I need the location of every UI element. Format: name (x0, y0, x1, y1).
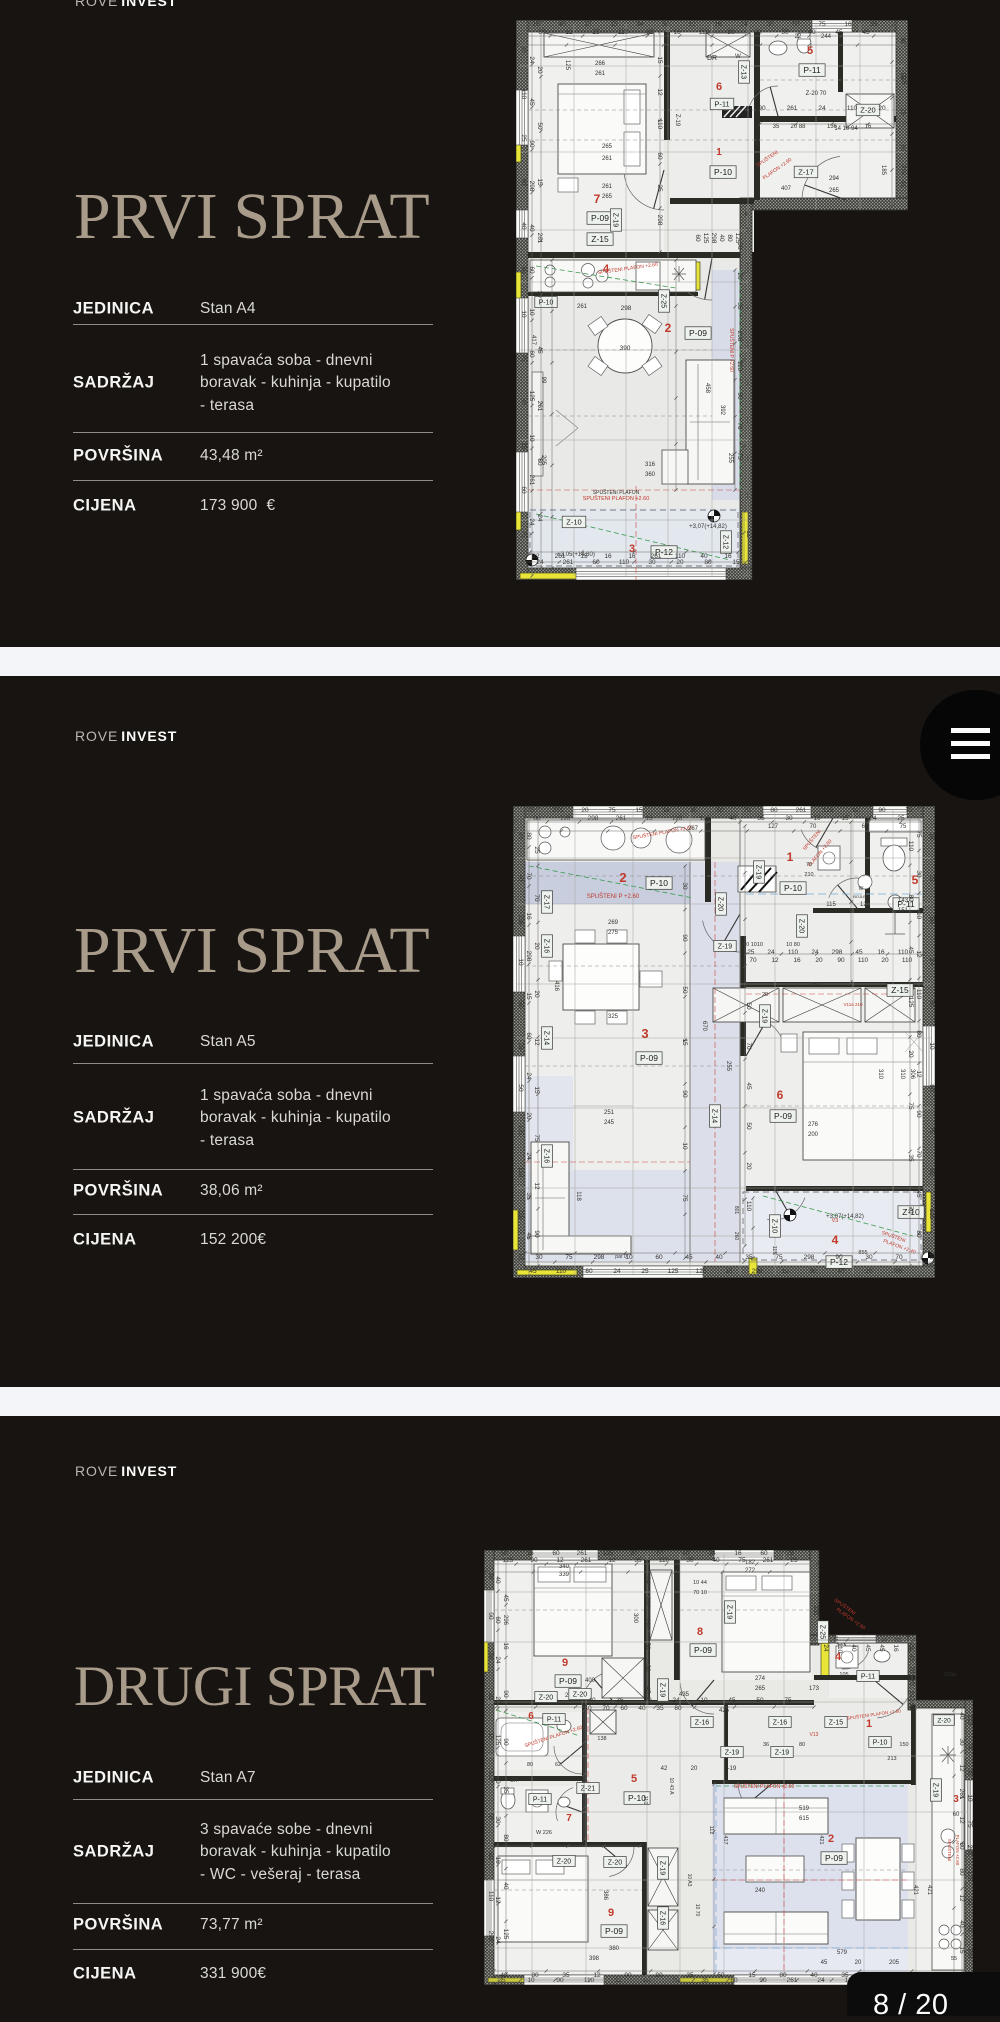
svg-text:110: 110 (672, 815, 683, 822)
svg-text:4: 4 (832, 1233, 839, 1247)
svg-text:16: 16 (662, 807, 670, 814)
svg-text:80: 80 (527, 1762, 533, 1768)
svg-text:325: 325 (608, 1014, 619, 1020)
svg-text:6: 6 (716, 81, 722, 93)
svg-text:24: 24 (767, 949, 775, 956)
svg-text:80: 80 (958, 1868, 965, 1876)
svg-text:75: 75 (786, 1550, 794, 1557)
svg-text:70: 70 (743, 807, 751, 814)
svg-text:125: 125 (702, 233, 709, 244)
svg-text:261: 261 (536, 233, 543, 244)
svg-text:173: 173 (809, 1686, 820, 1692)
svg-text:40: 40 (958, 1712, 965, 1720)
svg-text:125: 125 (494, 1735, 501, 1746)
svg-text:24: 24 (536, 559, 544, 566)
svg-text:6: 6 (777, 1088, 784, 1102)
svg-text:25: 25 (533, 846, 540, 854)
svg-text:Z-16: Z-16 (773, 1720, 788, 1727)
svg-text:Z-16: Z-16 (695, 1720, 710, 1727)
svg-text:110: 110 (915, 909, 922, 920)
svg-text:15: 15 (681, 1038, 688, 1046)
svg-text:Z-20: Z-20 (608, 1860, 623, 1867)
svg-text:80: 80 (915, 1230, 922, 1238)
svg-text:10: 10 (700, 1697, 708, 1704)
svg-text:261: 261 (528, 475, 535, 486)
svg-text:12: 12 (593, 1972, 601, 1979)
svg-text:269: 269 (608, 920, 619, 926)
svg-text:110: 110 (699, 29, 710, 36)
svg-text:75: 75 (915, 830, 922, 838)
svg-text:390: 390 (620, 345, 631, 352)
svg-text:P-11: P-11 (547, 1717, 561, 1724)
svg-text:255: 255 (725, 1061, 731, 1072)
svg-text:20: 20 (494, 1696, 501, 1704)
svg-text:425: 425 (719, 1708, 730, 1714)
svg-text:261: 261 (553, 807, 564, 814)
svg-text:210: 210 (900, 165, 906, 176)
svg-text:360: 360 (645, 472, 656, 478)
svg-text:60: 60 (494, 1616, 501, 1624)
svg-text:1: 1 (716, 147, 722, 158)
svg-text:12: 12 (958, 1894, 965, 1902)
svg-text:110: 110 (517, 1167, 524, 1178)
svg-text:62: 62 (555, 1762, 561, 1768)
svg-text:298: 298 (528, 181, 535, 192)
svg-text:125: 125 (517, 1125, 524, 1136)
svg-text:10: 10 (528, 434, 535, 442)
svg-text:75: 75 (533, 1134, 540, 1142)
svg-text:12: 12 (771, 957, 779, 964)
svg-text:Z-16: Z-16 (543, 1149, 550, 1164)
svg-text:35: 35 (899, 144, 906, 152)
svg-text:10: 10 (928, 1042, 935, 1050)
svg-text:300: 300 (632, 1613, 638, 1624)
svg-text:Z-19: Z-19 (612, 213, 619, 228)
svg-text:110: 110 (659, 1557, 670, 1564)
svg-text:75: 75 (520, 530, 527, 538)
svg-text:P-10: P-10 (784, 883, 802, 893)
svg-text:16: 16 (494, 1856, 501, 1864)
svg-text:P-09: P-09 (774, 1111, 792, 1121)
svg-text:P-11: P-11 (714, 100, 729, 109)
svg-text:90: 90 (624, 1972, 632, 1979)
svg-text:40: 40 (700, 553, 708, 560)
svg-text:75: 75 (681, 1194, 688, 1202)
svg-text:125: 125 (668, 1268, 679, 1275)
svg-text:35: 35 (745, 1254, 753, 1261)
svg-text:45: 45 (644, 1686, 651, 1694)
svg-text:10: 10 (528, 308, 535, 316)
svg-text:272: 272 (745, 1568, 756, 1574)
svg-text:15: 15 (656, 56, 663, 64)
svg-text:15: 15 (520, 442, 527, 450)
svg-text:110: 110 (656, 119, 663, 130)
svg-text:24: 24 (822, 1644, 829, 1652)
svg-text:15: 15 (610, 21, 618, 28)
svg-text:90: 90 (533, 1230, 540, 1238)
svg-text:75: 75 (775, 1254, 783, 1261)
svg-text:75: 75 (899, 108, 906, 116)
svg-text:30: 30 (644, 1664, 651, 1672)
svg-text:75: 75 (608, 807, 616, 814)
svg-text:10: 10 (625, 1254, 633, 1261)
svg-text:SPUŠTENI: SPUŠTENI (947, 1839, 953, 1862)
svg-text:60: 60 (792, 21, 800, 28)
svg-text:16: 16 (714, 21, 722, 28)
svg-text:90: 90 (928, 1168, 935, 1176)
svg-text:10: 10 (884, 211, 892, 218)
svg-text:80: 80 (770, 807, 778, 814)
svg-text:12: 12 (656, 88, 663, 96)
svg-text:15: 15 (732, 559, 740, 566)
svg-text:298: 298 (588, 815, 599, 822)
svg-text:5: 5 (807, 45, 813, 57)
svg-text:12: 12 (533, 1038, 540, 1046)
svg-text:118: 118 (575, 1191, 581, 1201)
svg-text:Z-20: Z-20 (539, 1695, 554, 1702)
svg-text:35: 35 (841, 1972, 849, 1979)
svg-text:316: 316 (645, 462, 656, 468)
svg-text:W: W (859, 886, 864, 892)
svg-text:25: 25 (656, 184, 663, 192)
svg-text:20: 20 (525, 1112, 532, 1120)
svg-text:110: 110 (675, 553, 686, 560)
svg-text:20: 20 (494, 1776, 501, 1784)
svg-text:30: 30 (630, 1550, 638, 1557)
svg-text:16: 16 (844, 21, 852, 28)
svg-text:24: 24 (928, 958, 935, 966)
svg-text:45: 45 (728, 1697, 736, 1704)
svg-text:205: 205 (889, 1960, 900, 1966)
svg-text:50: 50 (745, 1002, 752, 1010)
svg-text:421: 421 (912, 1885, 918, 1896)
svg-text:50: 50 (928, 916, 935, 924)
svg-text:90: 90 (487, 1612, 494, 1620)
svg-text:261: 261 (644, 1619, 651, 1630)
svg-text:45: 45 (685, 1254, 693, 1261)
svg-text:12: 12 (532, 553, 540, 560)
svg-text:Z-19: Z-19 (755, 865, 762, 880)
svg-text:V10a: V10a (944, 1672, 956, 1678)
svg-text:50: 50 (899, 72, 906, 80)
svg-text:20: 20 (691, 1766, 698, 1772)
svg-text:70 10: 70 10 (693, 1590, 707, 1596)
svg-text:40: 40 (729, 815, 737, 822)
svg-text:40: 40 (715, 1254, 723, 1261)
svg-text:35: 35 (616, 1697, 624, 1704)
svg-text:45: 45 (525, 1232, 532, 1240)
svg-text:SPUŠTENI P +2.60: SPUŠTENI P +2.60 (728, 328, 735, 372)
svg-text:25: 25 (520, 134, 527, 142)
svg-text:213: 213 (887, 1756, 896, 1762)
svg-text:24: 24 (644, 1576, 651, 1584)
svg-text:75: 75 (784, 211, 792, 218)
svg-text:30: 30 (785, 815, 793, 822)
svg-text:16: 16 (525, 912, 532, 920)
svg-text:10: 10 (536, 290, 543, 298)
svg-text:W: W (735, 54, 741, 60)
svg-text:125: 125 (603, 1550, 614, 1557)
svg-text:45: 45 (899, 180, 906, 188)
svg-text:10 70: 10 70 (694, 1904, 700, 1917)
svg-text:35: 35 (736, 302, 743, 310)
svg-text:261: 261 (581, 1557, 592, 1564)
svg-text:80: 80 (525, 832, 532, 840)
svg-text:20: 20 (536, 66, 543, 74)
svg-text:24: 24 (494, 1656, 501, 1664)
svg-text:298: 298 (736, 331, 743, 342)
svg-text:110: 110 (788, 949, 799, 956)
svg-text:30: 30 (535, 1254, 543, 1261)
svg-text:24: 24 (487, 1572, 494, 1580)
svg-text:90: 90 (736, 242, 743, 250)
svg-text:10: 10 (864, 211, 872, 218)
svg-text:2: 2 (665, 321, 672, 335)
svg-text:110: 110 (882, 219, 893, 226)
svg-text:Z-19: Z-19 (659, 1683, 666, 1698)
svg-text:P-11: P-11 (803, 65, 821, 75)
svg-text:Z-13: Z-13 (740, 65, 747, 80)
svg-text:30: 30 (686, 1557, 694, 1564)
svg-text:24: 24 (525, 1152, 532, 1160)
svg-text:310: 310 (877, 1069, 883, 1080)
svg-text:80: 80 (958, 1842, 965, 1850)
svg-text:Z-25: Z-25 (660, 294, 667, 309)
svg-text:12: 12 (915, 1070, 922, 1078)
svg-text:265: 265 (829, 188, 840, 194)
svg-text:90: 90 (966, 1898, 973, 1906)
svg-text:45: 45 (502, 1594, 509, 1602)
svg-text:298: 298 (804, 1254, 815, 1261)
svg-text:60: 60 (487, 1812, 494, 1820)
svg-text:75: 75 (907, 1102, 914, 1110)
svg-text:20: 20 (878, 105, 886, 112)
svg-text:407: 407 (781, 186, 792, 192)
svg-text:75: 75 (784, 1697, 792, 1704)
svg-text:151: 151 (898, 908, 909, 914)
svg-text:50: 50 (536, 122, 543, 130)
svg-text:12: 12 (556, 1557, 564, 1564)
svg-text:298: 298 (768, 219, 779, 226)
svg-text:125: 125 (966, 1871, 973, 1882)
svg-text:35: 35 (928, 874, 935, 882)
svg-text:35: 35 (757, 815, 765, 822)
svg-text:10: 10 (966, 1794, 973, 1802)
svg-text:68: 68 (895, 1638, 901, 1644)
svg-text:16: 16 (502, 1642, 509, 1650)
svg-text:80: 80 (533, 815, 541, 822)
svg-text:7: 7 (594, 192, 601, 206)
svg-text:Z-19: Z-19 (674, 114, 680, 127)
svg-text:20: 20 (762, 992, 768, 998)
svg-text:SPUŠTENI PLAFON +2.60: SPUŠTENI PLAFON +2.60 (734, 1783, 795, 1790)
svg-text:30: 30 (681, 882, 688, 890)
svg-text:Z-14: Z-14 (543, 1031, 550, 1046)
svg-text:112: 112 (708, 1826, 714, 1835)
svg-text:298: 298 (594, 1254, 605, 1261)
svg-text:75: 75 (928, 1126, 935, 1134)
svg-text:8: 8 (697, 1626, 703, 1638)
svg-text:60: 60 (760, 1550, 768, 1557)
svg-text:30: 30 (648, 559, 656, 566)
svg-text:Z-16: Z-16 (659, 1911, 666, 1926)
svg-text:60: 60 (528, 266, 535, 274)
svg-text:110: 110 (736, 361, 743, 372)
svg-text:40: 40 (718, 234, 725, 242)
svg-text:24: 24 (869, 815, 877, 822)
svg-text:240: 240 (755, 1888, 766, 1894)
svg-text:40: 40 (850, 1644, 857, 1652)
svg-text:SPUŠTENI PLAFON: SPUŠTENI PLAFON (593, 489, 640, 496)
svg-text:60: 60 (656, 1550, 664, 1557)
svg-text:579: 579 (837, 1950, 848, 1956)
svg-text:10 43 A: 10 43 A (668, 1778, 674, 1796)
svg-text:Z-15: Z-15 (829, 1720, 844, 1727)
svg-text:421: 421 (818, 1835, 824, 1844)
svg-text:110: 110 (745, 1201, 752, 1212)
svg-text:40: 40 (966, 1924, 973, 1932)
svg-text:70: 70 (749, 957, 757, 964)
svg-text:110: 110 (619, 559, 630, 566)
svg-text:12: 12 (788, 219, 796, 226)
svg-text:127: 127 (768, 824, 779, 830)
svg-text:V3: V3 (832, 1218, 839, 1224)
svg-text:Z-20: Z-20 (798, 919, 805, 934)
svg-text:70: 70 (754, 29, 762, 36)
svg-text:261: 261 (563, 559, 574, 566)
svg-text:16: 16 (877, 949, 885, 956)
svg-text:40: 40 (558, 21, 566, 28)
svg-text:210: 210 (804, 872, 813, 878)
svg-text:50: 50 (517, 1000, 524, 1008)
svg-text:45: 45 (835, 29, 843, 36)
svg-text:125: 125 (700, 815, 711, 822)
svg-text:Z-20: Z-20 (573, 1692, 588, 1699)
svg-text:70: 70 (907, 1206, 914, 1214)
svg-text:261: 261 (763, 1557, 774, 1564)
svg-text:417: 417 (530, 335, 536, 346)
svg-text:261: 261 (796, 807, 807, 814)
svg-text:30: 30 (494, 1816, 501, 1824)
svg-text:276: 276 (808, 1122, 819, 1128)
svg-text:275: 275 (608, 930, 619, 936)
svg-text:Z-20: Z-20 (860, 106, 875, 115)
svg-text:120: 120 (860, 902, 871, 908)
svg-text:35: 35 (502, 1786, 509, 1794)
svg-text:70: 70 (806, 862, 812, 868)
svg-text:P-09: P-09 (605, 1926, 623, 1936)
svg-text:20: 20 (676, 559, 684, 566)
svg-text:265: 265 (755, 1686, 766, 1692)
svg-text:12: 12 (614, 1977, 622, 1984)
svg-text:125: 125 (528, 391, 535, 402)
svg-text:125: 125 (564, 60, 570, 71)
svg-text:185: 185 (880, 165, 886, 176)
svg-text:150: 150 (899, 1742, 908, 1748)
svg-text:298: 298 (525, 951, 532, 962)
svg-text:294: 294 (829, 176, 840, 182)
svg-text:40: 40 (500, 1972, 508, 1979)
svg-text:138: 138 (597, 1736, 606, 1742)
svg-text:12: 12 (958, 1764, 965, 1772)
svg-text:30: 30 (487, 1692, 494, 1700)
svg-text:380: 380 (609, 1946, 620, 1952)
svg-text:24: 24 (525, 1072, 532, 1080)
svg-text:110: 110 (556, 1268, 567, 1275)
svg-text:110: 110 (847, 105, 858, 112)
svg-text:45: 45 (855, 949, 863, 956)
svg-text:70: 70 (736, 422, 743, 430)
svg-text:90: 90 (928, 1084, 935, 1092)
svg-text:45: 45 (907, 946, 914, 954)
svg-text:90: 90 (502, 1738, 509, 1746)
svg-text:110: 110 (487, 1891, 494, 1902)
svg-text:15: 15 (487, 1732, 494, 1740)
svg-text:261: 261 (644, 1597, 651, 1608)
svg-text:16: 16 (724, 553, 732, 560)
svg-text:110: 110 (836, 1643, 843, 1654)
svg-text:16: 16 (764, 211, 772, 218)
svg-text:P-10: P-10 (873, 1740, 888, 1747)
svg-text:V11a 210: V11a 210 (844, 1002, 863, 1007)
svg-text:Z-20: Z-20 (937, 1717, 951, 1724)
svg-text:20 88: 20 88 (790, 124, 806, 130)
svg-text:2: 2 (619, 870, 626, 885)
svg-text:24: 24 (708, 1550, 716, 1557)
svg-text:90: 90 (835, 1254, 843, 1261)
svg-text:PLAFON +2.60: PLAFON +2.60 (955, 1835, 960, 1866)
svg-text:10: 10 (865, 1268, 873, 1275)
svg-text:DR: DR (510, 1778, 518, 1784)
svg-text:458: 458 (704, 383, 710, 394)
svg-text:40: 40 (712, 1557, 720, 1564)
svg-text:75: 75 (520, 354, 527, 362)
svg-text:50: 50 (756, 1697, 764, 1704)
svg-text:416: 416 (553, 981, 559, 992)
svg-text:261: 261 (577, 304, 588, 310)
svg-text:Z-19: Z-19 (725, 1750, 740, 1757)
svg-text:10 A3: 10 A3 (686, 1874, 692, 1887)
svg-text:261: 261 (958, 1789, 965, 1800)
svg-text:80: 80 (907, 894, 914, 902)
svg-text:35: 35 (701, 1977, 709, 1984)
svg-text:260: 260 (733, 1232, 739, 1241)
svg-text:386: 386 (602, 1890, 608, 1901)
svg-text:80: 80 (487, 1852, 494, 1860)
svg-text:30: 30 (966, 1768, 973, 1776)
svg-text:Z-17: Z-17 (798, 168, 813, 177)
svg-text:40: 40 (528, 224, 535, 232)
svg-text:Z-20 70: Z-20 70 (806, 91, 827, 97)
svg-text:10 44: 10 44 (693, 1580, 707, 1586)
svg-text:261: 261 (651, 553, 662, 560)
svg-text:24: 24 (613, 1268, 621, 1275)
svg-text:298: 298 (966, 1845, 973, 1856)
svg-text:W 226: W 226 (536, 1830, 552, 1836)
svg-text:125: 125 (502, 1929, 509, 1940)
svg-text:298: 298 (892, 1268, 903, 1275)
svg-text:519: 519 (799, 1806, 810, 1812)
svg-text:25: 25 (641, 1268, 649, 1275)
svg-text:296: 296 (502, 1615, 508, 1626)
svg-text:40: 40 (682, 1550, 690, 1557)
svg-text:16: 16 (517, 832, 524, 840)
svg-text:24: 24 (636, 21, 644, 28)
svg-text:298: 298 (752, 1268, 763, 1275)
svg-text:40: 40 (808, 29, 816, 36)
svg-text:261: 261 (555, 553, 566, 560)
svg-text:35: 35 (634, 1557, 642, 1564)
